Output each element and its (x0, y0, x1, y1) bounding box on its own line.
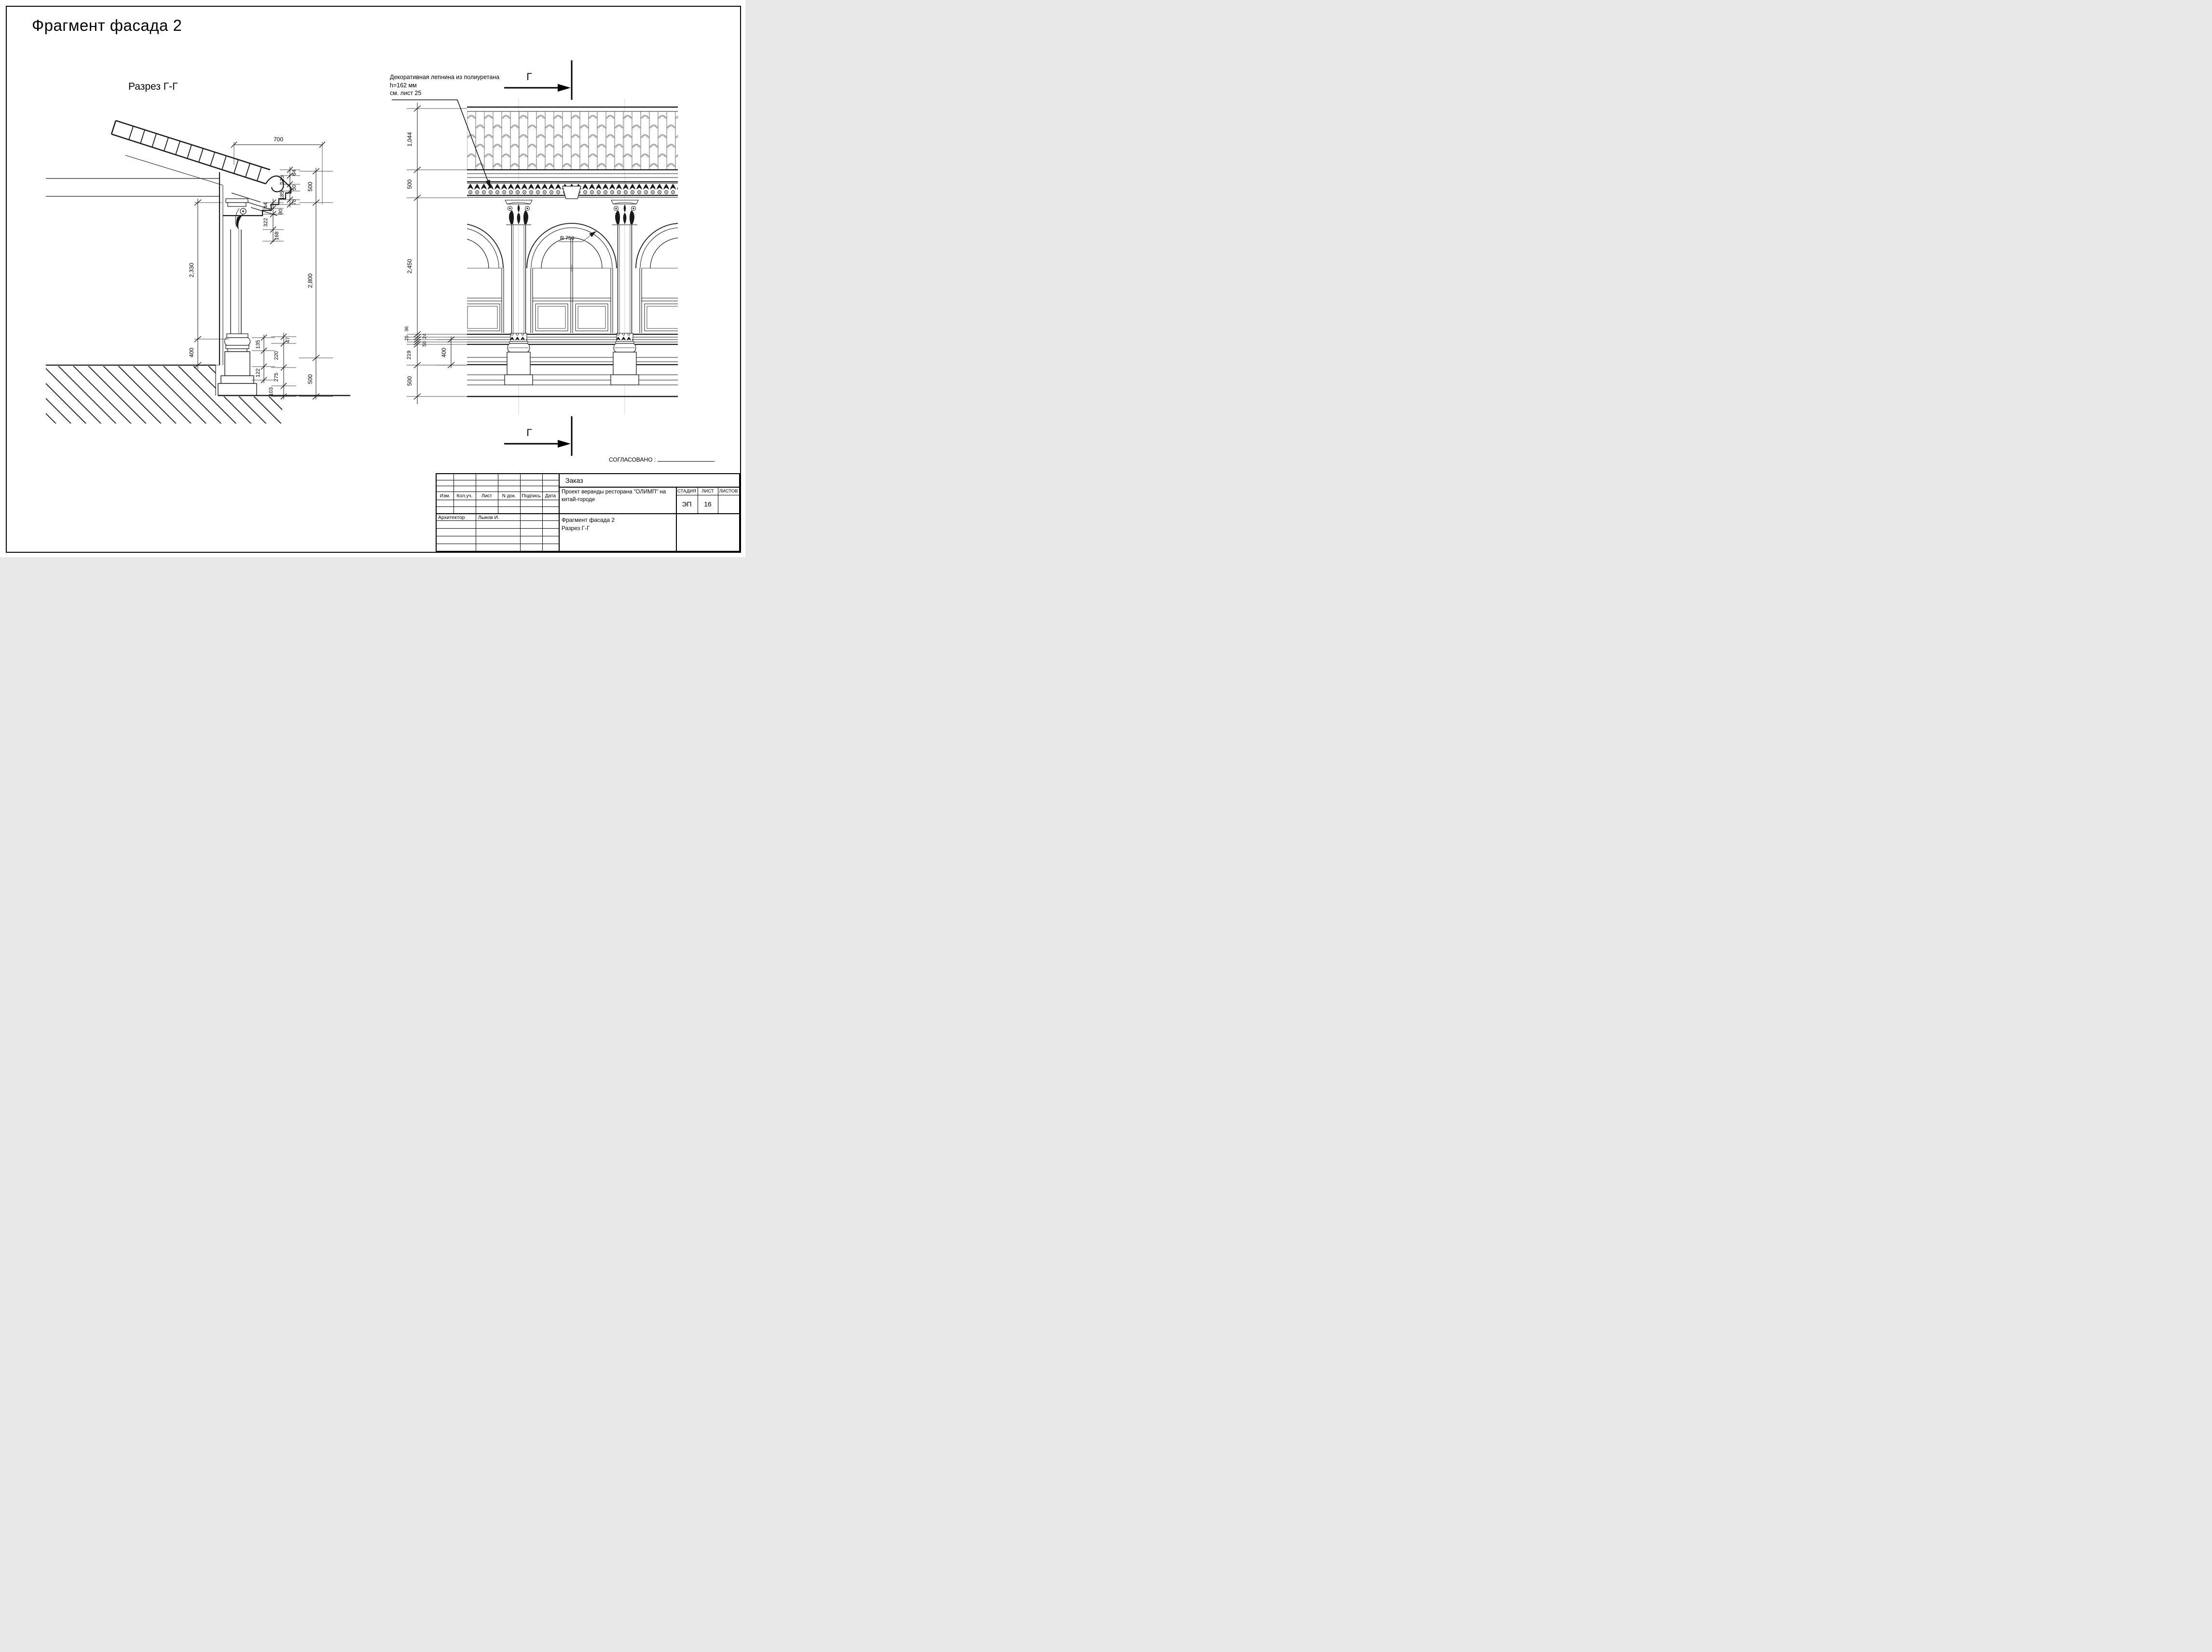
dim-322: 322 (263, 218, 269, 227)
tb-col-data: Дата (542, 493, 559, 499)
dim-168: 168 (274, 232, 280, 240)
tb-col-podpis: Подпись (520, 493, 542, 499)
section-arrow-top-icon (558, 84, 571, 92)
tb-project-line1: Проект веранды ресторана "ОЛИМП" на (562, 489, 673, 496)
tb-order: Заказ (565, 477, 583, 484)
dim-2800: 2,800 (307, 273, 314, 288)
dim-219: 219 (406, 351, 412, 359)
dim-80: 80 (278, 209, 284, 215)
dim-103: 103 (268, 387, 274, 396)
section-letter-bottom: Г (526, 427, 532, 438)
tb-col-izm: Изм. (437, 493, 453, 499)
title-block: Изм. Кол.уч. Лист N док. Подпись Дата Ар… (436, 473, 740, 552)
tb-grid-line (437, 500, 559, 500)
dim-500-bottom: 500 (307, 374, 314, 384)
tb-grid-line (676, 487, 677, 551)
tb-grid-line (437, 506, 559, 507)
section-dimension-labels: 700 500 2,800 500 2,330 400 64 125 50 18… (188, 136, 314, 396)
section-arrow-bottom-icon (558, 440, 571, 448)
tb-grid-line (676, 495, 739, 495)
dim-122: 122 (255, 369, 261, 377)
tb-grid-line (437, 492, 559, 492)
dim-135: 135 (255, 340, 261, 349)
tb-grid-line (437, 536, 559, 536)
section-letter-top: Г (526, 71, 532, 82)
dim-24: 24 (422, 333, 427, 339)
dim-220: 220 (274, 351, 279, 360)
dim-275: 275 (274, 373, 279, 382)
tb-grid-line (437, 486, 559, 486)
dim-125: 125 (279, 176, 285, 184)
tb-project: Проект веранды ресторана "ОЛИМП" на кита… (562, 489, 673, 504)
tb-drawing-title-line2: Разрез Г-Г (562, 524, 673, 532)
tb-stage-label: СТАДИЯ (676, 489, 698, 494)
tb-grid-line (437, 520, 559, 521)
dim-1044: 1,044 (406, 132, 413, 147)
tb-thick-divider (437, 513, 739, 514)
tb-grid-line (437, 544, 559, 544)
tb-col-ndok: N док. (498, 493, 520, 499)
dim-50: 50 (291, 185, 297, 191)
tb-sheets-label: ЛИСТОВ (718, 489, 739, 494)
dim-700: 700 (274, 136, 283, 143)
tb-col-koluch: Кол.уч. (453, 493, 476, 499)
tb-sheet-label: ЛИСТ (698, 489, 718, 494)
tb-role: Архитектор (438, 515, 475, 520)
tb-main-divider (559, 474, 560, 551)
tb-grid-line (437, 528, 559, 529)
dim-36: 36 (404, 326, 410, 332)
dim-2330: 2,330 (188, 263, 195, 277)
tb-grid-line (559, 487, 739, 488)
tb-grid-line (437, 480, 559, 480)
dim-500-base: 500 (406, 376, 413, 386)
tb-col-list: Лист (476, 493, 498, 499)
tb-drawing-title-line1: Фрагмент фасада 2 (562, 516, 673, 524)
dim-185: 185 (279, 191, 285, 200)
tb-sheet-value: 16 (698, 500, 718, 508)
elevation-dimensions (407, 103, 467, 404)
radius-label: R 750 (560, 235, 574, 241)
dim-500-frieze: 500 (406, 179, 413, 189)
tb-project-line2: китай-городе (562, 496, 673, 504)
tb-drawing-title: Фрагмент фасада 2 Разрез Г-Г (562, 516, 673, 532)
tb-stage-value: ЭП (676, 500, 698, 508)
dim-47: 47 (285, 337, 291, 343)
dim-2450: 2,450 (406, 259, 413, 273)
drawing-sheet: Фрагмент фасада 2 Разрез Г-Г Декоративна… (0, 0, 745, 557)
pilaster-base-left (505, 333, 533, 385)
dim-500-top: 500 (307, 182, 314, 191)
dim-44: 44 (263, 203, 269, 208)
tb-author: Лыков И. (478, 515, 519, 520)
dim-25: 25 (404, 335, 410, 341)
elevation-dimension-labels: 1,044 500 2,450 219 500 36 25 24 50 400 (404, 132, 447, 386)
dim-78: 78 (291, 199, 297, 205)
dim-400-left: 400 (188, 348, 195, 357)
dim-64: 64 (291, 170, 297, 176)
elevation-drawing (413, 99, 726, 415)
dim-50-plinth: 50 (422, 341, 427, 347)
section-dimensions (194, 142, 333, 399)
pilaster-base-right (611, 333, 639, 385)
dim-400-pedestal: 400 (440, 348, 447, 357)
